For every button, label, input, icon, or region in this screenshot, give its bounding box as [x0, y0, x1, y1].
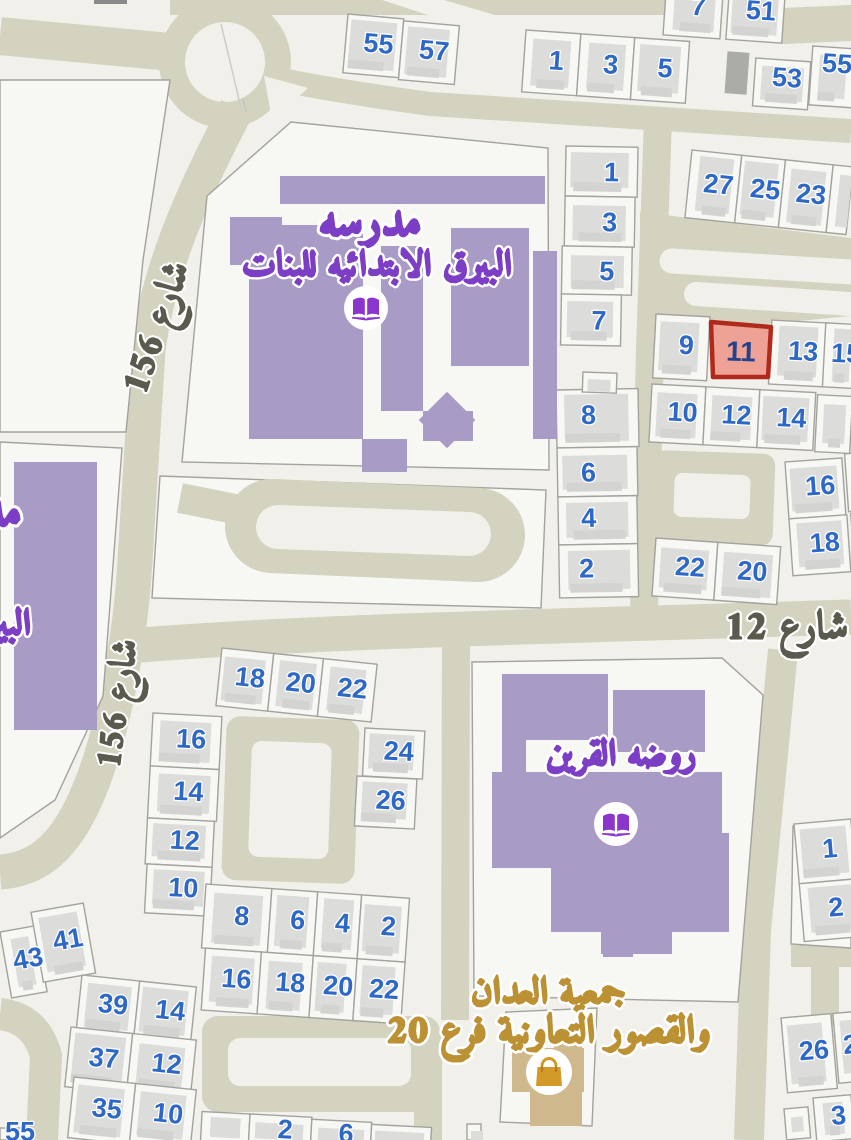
svg-text:16: 16 — [175, 723, 207, 755]
svg-text:25: 25 — [749, 173, 782, 206]
svg-text:10: 10 — [667, 396, 699, 428]
svg-text:23: 23 — [795, 178, 828, 211]
svg-text:6: 6 — [289, 904, 306, 935]
svg-text:2: 2 — [827, 892, 845, 923]
svg-text:18: 18 — [234, 661, 267, 694]
svg-text:16: 16 — [220, 963, 252, 995]
svg-text:22: 22 — [336, 672, 369, 705]
svg-text:10: 10 — [152, 1097, 185, 1130]
svg-text:55: 55 — [362, 28, 395, 61]
svg-text:2: 2 — [277, 1114, 294, 1140]
svg-text:7: 7 — [591, 305, 607, 335]
svg-text:14: 14 — [173, 776, 205, 808]
svg-text:4: 4 — [581, 503, 597, 533]
svg-text:18: 18 — [274, 967, 306, 999]
svg-text:15: 15 — [830, 338, 851, 370]
svg-text:12: 12 — [721, 399, 753, 431]
svg-text:9: 9 — [678, 330, 695, 361]
svg-text:14: 14 — [154, 994, 187, 1027]
svg-text:24: 24 — [383, 736, 415, 768]
svg-text:10: 10 — [168, 872, 200, 904]
svg-text:13: 13 — [787, 335, 819, 367]
svg-text:12: 12 — [150, 1047, 183, 1080]
svg-text:3: 3 — [602, 207, 618, 237]
svg-text:2: 2 — [842, 1029, 851, 1060]
svg-text:27: 27 — [702, 168, 735, 201]
svg-text:5: 5 — [599, 256, 615, 286]
svg-text:12: 12 — [169, 825, 201, 857]
svg-text:16: 16 — [804, 470, 836, 502]
svg-text:1: 1 — [548, 45, 565, 76]
svg-text:43: 43 — [11, 941, 46, 976]
svg-text:1: 1 — [604, 157, 620, 187]
svg-text:2: 2 — [380, 911, 397, 942]
svg-text:39: 39 — [97, 988, 130, 1021]
svg-text:51: 51 — [745, 0, 777, 27]
svg-text:53: 53 — [771, 62, 803, 94]
svg-text:55: 55 — [821, 48, 851, 80]
svg-text:7: 7 — [690, 0, 707, 22]
svg-text:2: 2 — [579, 553, 595, 583]
svg-text:3: 3 — [830, 1100, 848, 1131]
svg-text:20: 20 — [284, 666, 317, 699]
svg-text:3: 3 — [602, 49, 619, 80]
svg-text:8: 8 — [233, 901, 250, 932]
svg-text:57: 57 — [418, 34, 451, 67]
svg-text:55: 55 — [5, 1117, 35, 1140]
svg-text:1: 1 — [821, 833, 839, 864]
svg-text:26: 26 — [375, 785, 407, 817]
svg-text:18: 18 — [809, 526, 841, 558]
svg-text:35: 35 — [90, 1092, 123, 1125]
svg-text:20: 20 — [736, 555, 768, 587]
svg-text:4: 4 — [334, 908, 351, 939]
svg-text:6: 6 — [581, 457, 597, 487]
svg-text:41: 41 — [50, 922, 85, 957]
svg-text:14: 14 — [776, 402, 808, 434]
svg-text:22: 22 — [674, 551, 706, 583]
svg-text:20: 20 — [322, 970, 354, 1002]
svg-text:11: 11 — [726, 335, 757, 367]
svg-text:22: 22 — [368, 973, 400, 1005]
svg-text:6: 6 — [338, 1118, 355, 1140]
svg-text:8: 8 — [581, 400, 597, 430]
svg-text:26: 26 — [798, 1034, 831, 1067]
svg-text:37: 37 — [87, 1042, 120, 1075]
svg-text:5: 5 — [657, 53, 674, 84]
